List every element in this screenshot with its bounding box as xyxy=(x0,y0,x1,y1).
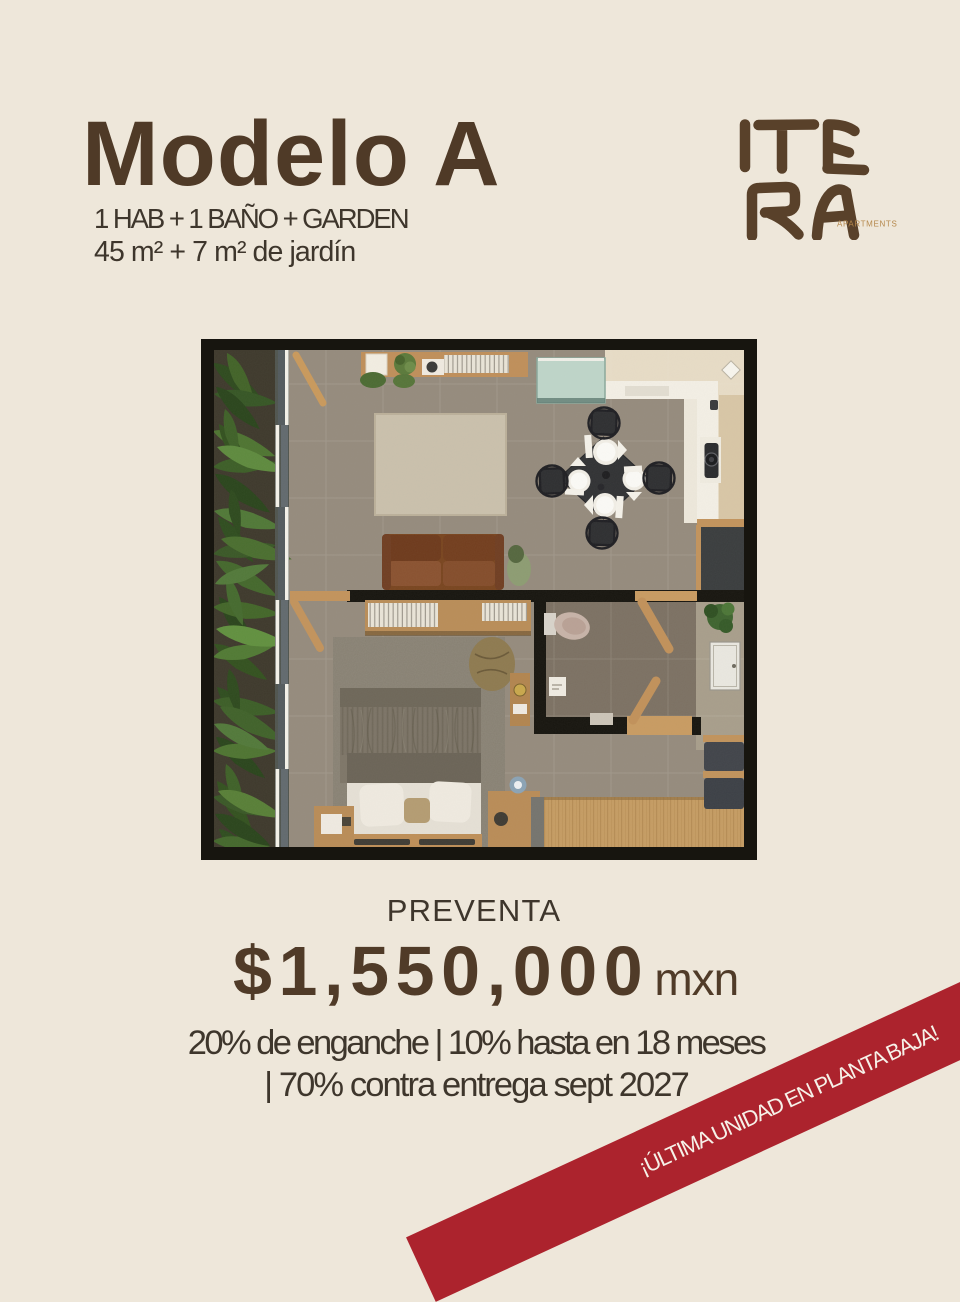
svg-text:APARTMENTS: APARTMENTS xyxy=(837,220,897,229)
